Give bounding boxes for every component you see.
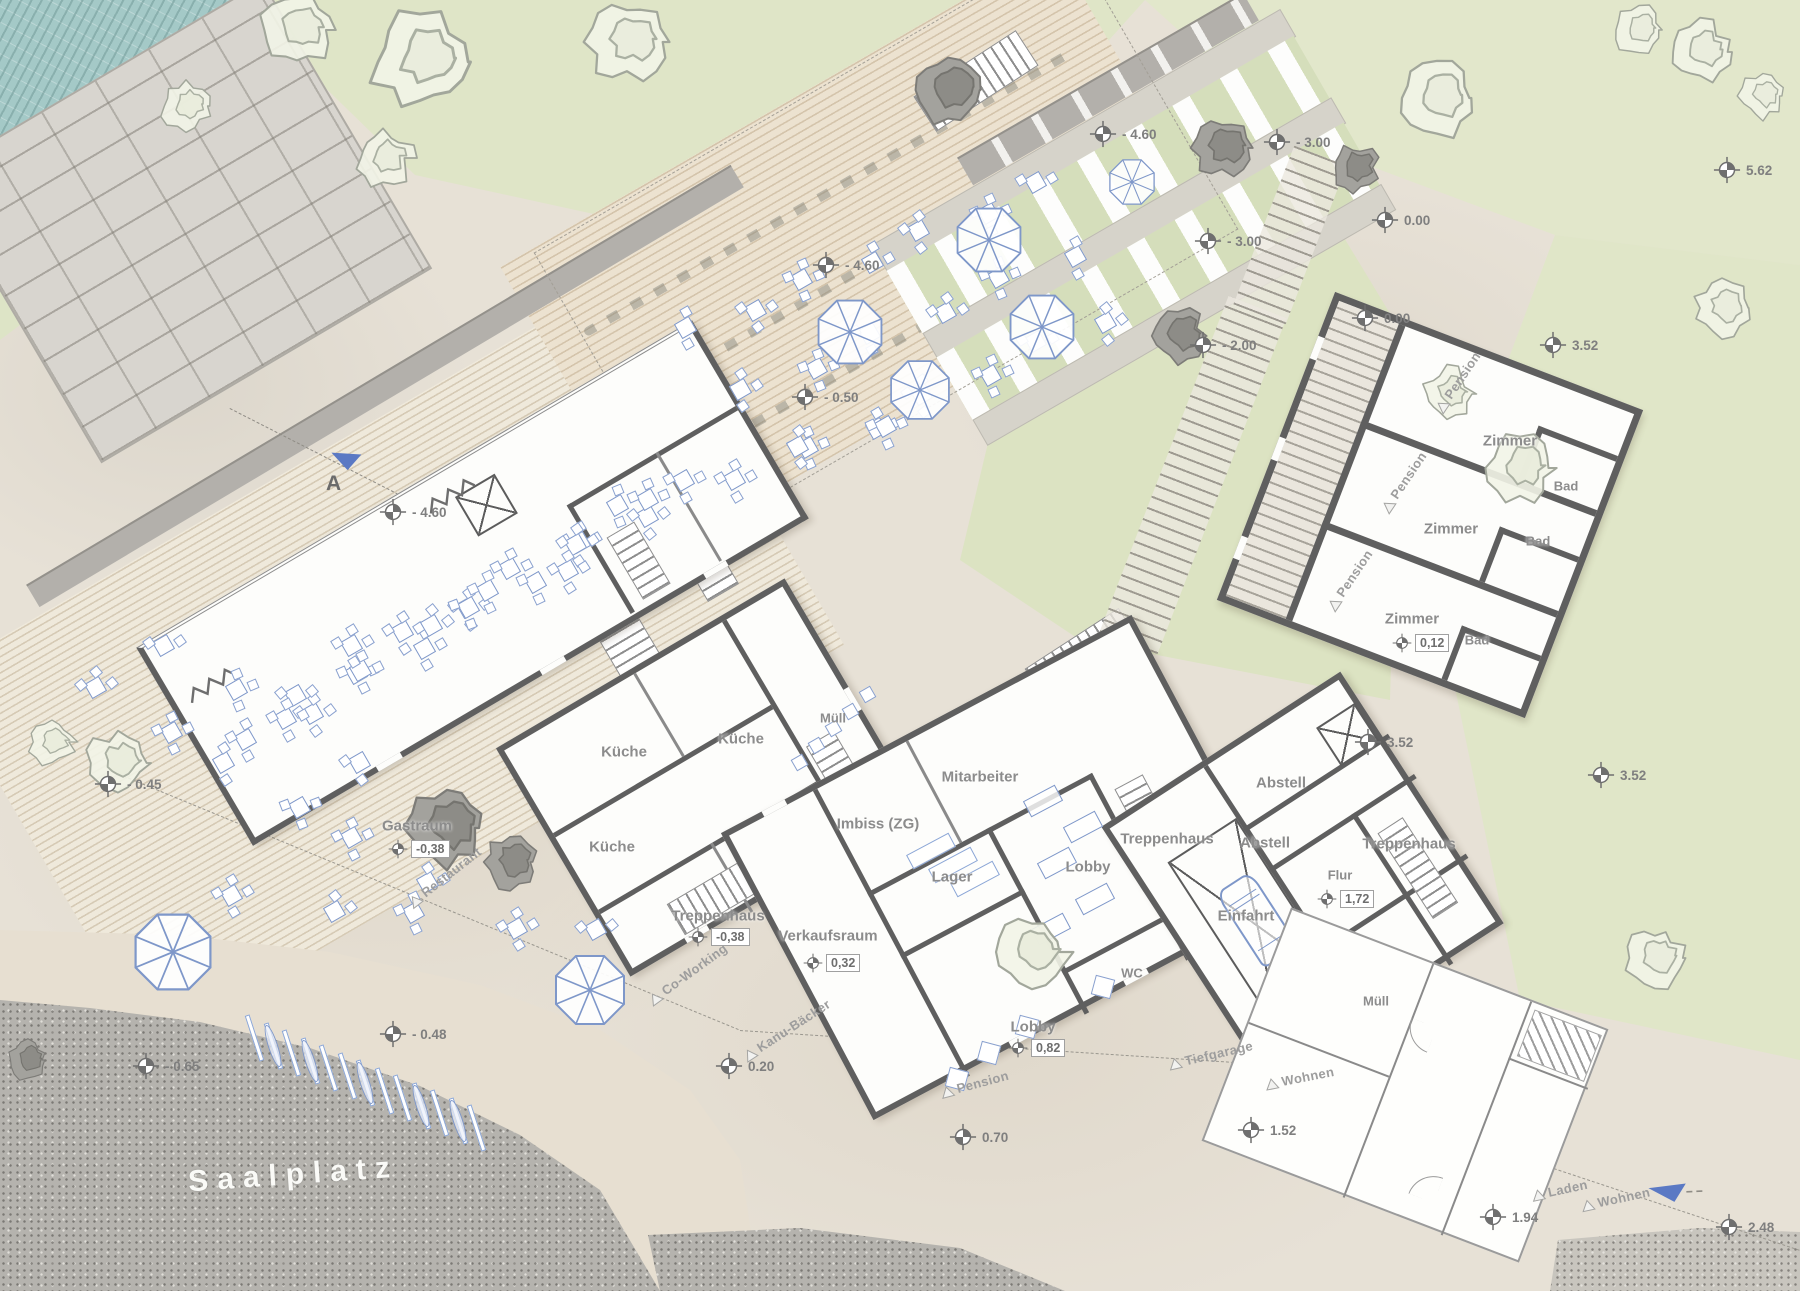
room-label-text: Bad <box>1526 534 1551 549</box>
path-label-text: Wohnen <box>1596 1184 1651 1210</box>
room-elevation-marker: 1,72 <box>1317 889 1374 909</box>
benchmark-icon <box>1189 331 1217 359</box>
elevation-marker: - 2.00 <box>1189 331 1257 359</box>
room-label-text: Lager <box>932 869 973 886</box>
room-elevation-marker: 0,32 <box>803 953 860 973</box>
door-triangle-icon <box>940 1085 954 1098</box>
room-label-text: Lobby <box>1011 1019 1056 1036</box>
path-label: Pension <box>1432 349 1483 415</box>
room-label: Küche <box>601 744 647 761</box>
benchmark-icon <box>1587 761 1615 789</box>
door-triangle-icon <box>1168 1057 1182 1069</box>
door-triangle-icon <box>1380 498 1395 514</box>
elevation-value: - 4.60 <box>845 258 880 273</box>
benchmark-icon <box>1351 304 1379 332</box>
section-marker-a: A <box>326 472 341 496</box>
room-label-text: Imbiss (ZG) <box>837 816 920 833</box>
elevation-value: 3.52 <box>1620 768 1646 783</box>
elevation-value: - 3.00 <box>1296 135 1331 150</box>
door-triangle-icon <box>1581 1199 1595 1211</box>
benchmark-icon <box>1713 156 1741 184</box>
path-label-text: Pension <box>1333 547 1375 600</box>
elevation-marker: 1.94 <box>1479 1203 1538 1231</box>
room-label: Abstell <box>1240 835 1290 852</box>
annotation-layer: Saalplatz A Gastraum-0,38KücheKücheKüche… <box>0 0 1800 1291</box>
benchmark-icon <box>803 953 823 973</box>
benchmark-icon <box>1263 128 1291 156</box>
path-label-text: Pension <box>955 1068 1010 1096</box>
elevation-marker: - 3.00 <box>1263 128 1331 156</box>
room-label-text: Flur <box>1328 868 1353 883</box>
elevation-marker: 3.52 <box>1539 331 1598 359</box>
elevation-marker: 0.70 <box>949 1123 1008 1151</box>
path-label: Pension <box>940 1068 1011 1100</box>
elevation-value: 3.52 <box>1387 735 1413 750</box>
room-label-text: Mitarbeiter <box>942 769 1019 786</box>
path-label: Wohnen <box>1264 1064 1335 1092</box>
room-label: Einfahrt <box>1218 908 1275 925</box>
elevation-marker: - 4.60 <box>1089 120 1157 148</box>
benchmark-icon <box>1008 1038 1028 1058</box>
path-label-text: Wohnen <box>1280 1064 1335 1089</box>
elevation-value: - 0.50 <box>824 390 859 405</box>
room-label: Treppenhaus <box>671 908 764 925</box>
elevation-value: 0.00 <box>1384 311 1410 326</box>
room-label-text: Treppenhaus <box>1120 831 1213 848</box>
room-label-text: Müll <box>820 711 846 726</box>
elevation-value: - 4.60 <box>412 505 447 520</box>
room-label: Bad <box>1465 633 1490 648</box>
room-label-text: Küche <box>589 839 635 856</box>
elevation-marker: 0.00 <box>1351 304 1410 332</box>
room-label-text: Einfahrt <box>1218 908 1275 925</box>
benchmark-icon <box>379 1020 407 1048</box>
path-label: Kanu-Bäcker <box>741 996 834 1063</box>
section-triangle-icon <box>327 443 363 476</box>
room-label-text: Zimmer <box>1424 521 1478 538</box>
benchmark-icon <box>688 927 708 947</box>
path-label: Tiefgarage <box>1168 1038 1255 1072</box>
benchmark-icon <box>1237 1116 1265 1144</box>
door-triangle-icon <box>647 990 663 1005</box>
benchmark-icon <box>1715 1213 1743 1241</box>
elevation-value: 1.52 <box>1270 1123 1296 1138</box>
elevation-marker: - 0.65 <box>132 1052 200 1080</box>
benchmark-icon <box>1479 1203 1507 1231</box>
path-label-text: Co-Working <box>659 940 730 998</box>
elevation-marker: - 4.60 <box>812 251 880 279</box>
path-label-text: Pension <box>1441 349 1483 402</box>
door-triangle-icon <box>407 893 423 908</box>
elevation-value: 2.48 <box>1748 1220 1774 1235</box>
elevation-marker: 1.52 <box>1237 1116 1296 1144</box>
elevation-value: 5.62 <box>1746 163 1772 178</box>
room-label-text: Gastraum <box>382 818 452 835</box>
benchmark-icon <box>94 770 122 798</box>
elevation-value: - 2.00 <box>1222 338 1257 353</box>
benchmark-icon <box>1371 206 1399 234</box>
elevation-marker: 2.48 <box>1715 1213 1774 1241</box>
room-label-text: Zimmer <box>1483 433 1537 450</box>
room-label-text: Treppenhaus <box>671 908 764 925</box>
room-label: Zimmer <box>1385 611 1439 628</box>
room-label: WC <box>1121 966 1143 981</box>
benchmark-icon <box>791 383 819 411</box>
room-label-text: Bad <box>1465 633 1490 648</box>
room-label-text: Abstell <box>1256 775 1306 792</box>
room-label-text: Zimmer <box>1385 611 1439 628</box>
elevation-marker: - 3.00 <box>1194 227 1262 255</box>
room-label: Bad <box>1554 479 1579 494</box>
place-label-saalplatz: Saalplatz <box>187 1151 400 1200</box>
benchmark-icon <box>388 839 408 859</box>
room-label: Verkaufsraum <box>778 928 877 945</box>
room-label: Treppenhaus <box>1120 831 1213 848</box>
benchmark-icon <box>1194 227 1222 255</box>
elevation-value: -0,38 <box>411 840 450 858</box>
benchmark-icon <box>949 1123 977 1151</box>
room-label: Zimmer <box>1424 521 1478 538</box>
path-label: Pension <box>1378 449 1429 515</box>
door-triangle-icon <box>1326 596 1341 612</box>
room-elevation-marker: 0,12 <box>1392 633 1449 653</box>
benchmark-icon <box>379 498 407 526</box>
room-label-text: Lobby <box>1066 859 1111 876</box>
room-label: Müll <box>820 711 846 726</box>
room-label: Lager <box>932 869 973 886</box>
elevation-marker: 3.52 <box>1587 761 1646 789</box>
door-triangle-icon <box>1434 398 1449 414</box>
door-triangle-icon <box>1265 1077 1279 1089</box>
room-label: Imbiss (ZG) <box>837 816 920 833</box>
benchmark-icon <box>1539 331 1567 359</box>
path-label-text: Pension <box>1387 449 1429 502</box>
benchmark-icon <box>132 1052 160 1080</box>
room-elevation-marker: 0,82 <box>1008 1038 1065 1058</box>
benchmark-icon <box>1392 633 1412 653</box>
elevation-value: - 4.60 <box>1122 127 1157 142</box>
room-label: Müll <box>1363 994 1389 1009</box>
room-label: Küche <box>589 839 635 856</box>
room-label: Flur <box>1328 868 1353 883</box>
path-label: Co-Working <box>646 940 730 1007</box>
room-label: Mitarbeiter <box>942 769 1019 786</box>
path-label-text: Tiefgarage <box>1183 1038 1254 1068</box>
room-label: Küche <box>718 731 764 748</box>
elevation-value: - 0.65 <box>165 1059 200 1074</box>
room-label-text: Küche <box>601 744 647 761</box>
room-label: Gastraum <box>382 818 452 835</box>
room-elevation-marker: -0,38 <box>388 839 450 859</box>
elevation-value: 1.94 <box>1512 1210 1538 1225</box>
room-label-text: Müll <box>1363 994 1389 1009</box>
benchmark-icon <box>1317 889 1337 909</box>
room-label-text: WC <box>1121 966 1143 981</box>
elevation-marker: - 4.60 <box>379 498 447 526</box>
room-label: Treppenhaus <box>1362 836 1455 853</box>
direction-arrow-icon <box>1646 1175 1706 1210</box>
room-label-text: Verkaufsraum <box>778 928 877 945</box>
elevation-value: 0,32 <box>826 954 860 972</box>
room-label: Abstell <box>1256 775 1306 792</box>
elevation-value: 3.52 <box>1572 338 1598 353</box>
room-label: Zimmer <box>1483 433 1537 450</box>
elevation-marker: 3.52 <box>1354 728 1413 756</box>
elevation-value: - 0.45 <box>127 777 162 792</box>
elevation-value: - 0.48 <box>412 1027 447 1042</box>
benchmark-icon <box>715 1052 743 1080</box>
elevation-value: 1,72 <box>1340 890 1374 908</box>
elevation-value: 0.00 <box>1404 213 1430 228</box>
site-plan-canvas: Saalplatz A Gastraum-0,38KücheKücheKüche… <box>0 0 1800 1291</box>
room-label: Bad <box>1526 534 1551 549</box>
door-triangle-icon <box>1531 1188 1545 1200</box>
elevation-value: 0,12 <box>1415 634 1449 652</box>
room-label: Lobby <box>1011 1019 1056 1036</box>
room-label-text: Abstell <box>1240 835 1290 852</box>
path-label: Wohnen <box>1580 1184 1651 1213</box>
room-label-text: Bad <box>1554 479 1579 494</box>
room-label: Lobby <box>1066 859 1111 876</box>
benchmark-icon <box>1354 728 1382 756</box>
elevation-value: - 3.00 <box>1227 234 1262 249</box>
elevation-value: 0,82 <box>1031 1039 1065 1057</box>
elevation-value: 0.70 <box>982 1130 1008 1145</box>
benchmark-icon <box>1089 120 1117 148</box>
path-label: Pension <box>1324 547 1375 613</box>
path-label-text: Kanu-Bäcker <box>754 996 833 1055</box>
room-label-text: Treppenhaus <box>1362 836 1455 853</box>
elevation-marker: - 0.50 <box>791 383 859 411</box>
elevation-marker: - 0.48 <box>379 1020 447 1048</box>
benchmark-icon <box>812 251 840 279</box>
elevation-marker: 0.00 <box>1371 206 1430 234</box>
elevation-marker: - 0.45 <box>94 770 162 798</box>
elevation-marker: 5.62 <box>1713 156 1772 184</box>
room-label-text: Küche <box>718 731 764 748</box>
path-label-text: Laden <box>1547 1177 1590 1200</box>
